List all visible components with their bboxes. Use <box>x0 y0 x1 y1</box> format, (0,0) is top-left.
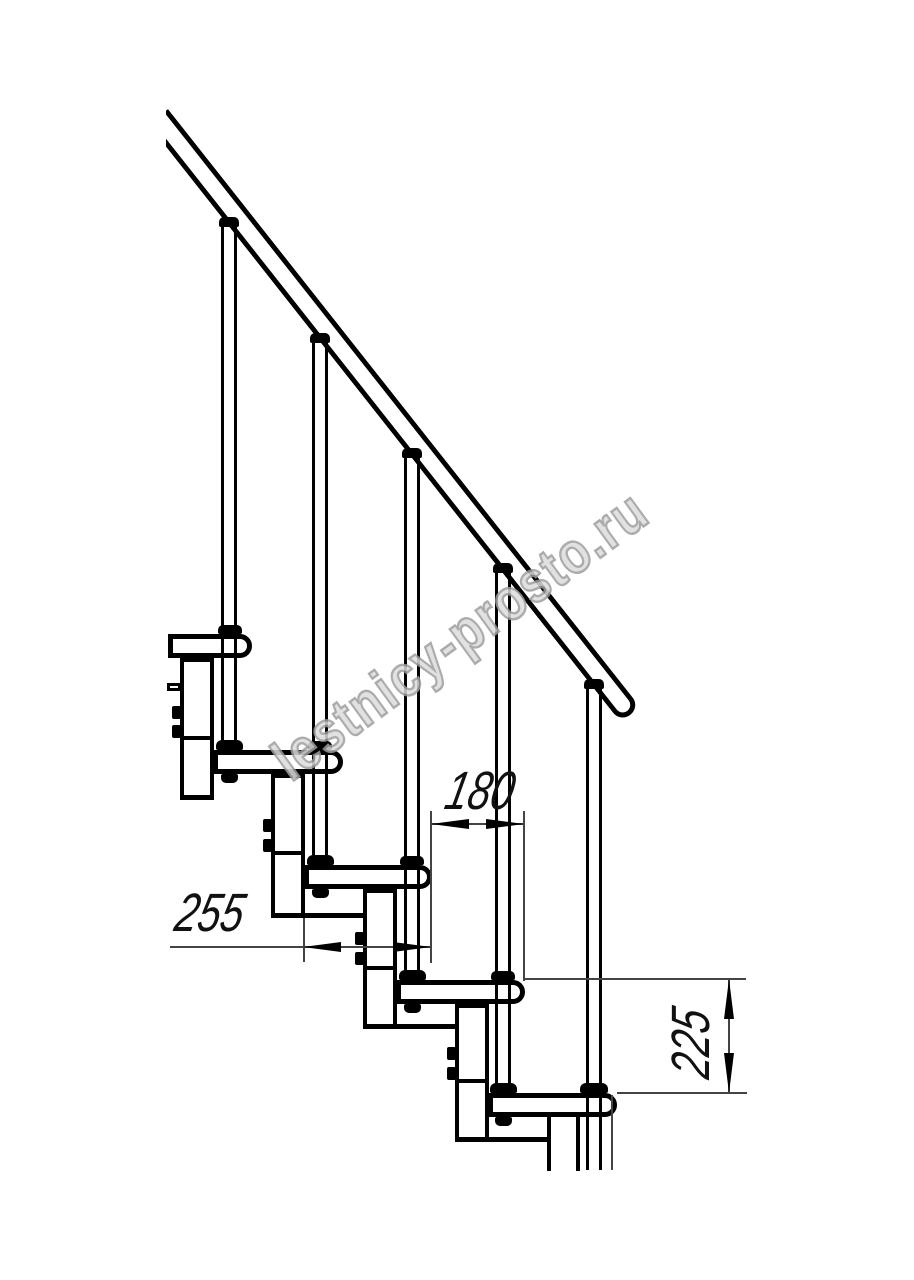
baluster-collar <box>491 971 515 980</box>
dimension-label-180: 180 <box>440 760 530 822</box>
dimension-text: 255 <box>170 882 251 944</box>
extension-line <box>525 978 746 980</box>
adjustment-bolt <box>447 1067 456 1080</box>
baluster-collar <box>400 856 424 865</box>
fastening-nut <box>495 1117 512 1126</box>
baluster-rail-cap <box>310 333 330 343</box>
baluster <box>221 227 237 753</box>
dimension-label-225: 225 <box>661 992 721 1084</box>
module-divider-line <box>180 736 214 740</box>
baluster-collar <box>218 625 242 634</box>
baluster-rail-cap <box>584 679 604 689</box>
arrowhead-left-icon <box>303 942 341 952</box>
adjustment-bolt <box>355 952 364 965</box>
baluster-foot <box>490 1083 517 1093</box>
baluster-foot <box>580 1083 608 1093</box>
stringer-module <box>547 1117 580 1171</box>
stringer-module <box>363 889 397 1029</box>
dimension-text: 180 <box>440 760 521 822</box>
module-divider-line <box>271 851 305 855</box>
baluster <box>404 458 420 982</box>
module-flange <box>455 1137 547 1142</box>
fastening-nut <box>404 1004 421 1013</box>
module-divider-line <box>455 1079 489 1083</box>
arrowhead-up-icon <box>724 979 734 1019</box>
adjustment-bolt <box>172 725 181 738</box>
baluster-foot <box>307 855 334 865</box>
adjustment-bolt <box>263 839 272 852</box>
baluster <box>586 689 602 1170</box>
left-crop-mask <box>0 0 166 280</box>
baluster-rail-cap <box>219 217 239 227</box>
module-flange <box>271 913 364 918</box>
nose-drop-line <box>611 1095 613 1170</box>
module-flange <box>363 1024 455 1029</box>
adjustment-bolt <box>355 932 364 945</box>
dimension-label-255: 255 <box>170 882 260 944</box>
extension-line <box>523 811 525 981</box>
adjustment-bolt <box>172 706 181 719</box>
arrowhead-down-icon <box>724 1053 734 1093</box>
module-divider-line <box>363 966 397 970</box>
module-flange <box>180 795 214 800</box>
baluster-rail-cap <box>402 448 422 458</box>
stringer-module <box>180 658 214 800</box>
arrowhead-right-icon <box>393 942 431 952</box>
baluster <box>312 343 328 867</box>
baluster-foot <box>399 970 426 980</box>
tread <box>168 634 252 658</box>
extension-line <box>303 918 305 962</box>
dimension-text: 225 <box>660 1002 722 1083</box>
stringer-module <box>455 1004 489 1142</box>
extension-line <box>430 811 432 963</box>
adjustment-bolt <box>447 1047 456 1060</box>
adjustment-bolt <box>263 819 272 832</box>
fastening-nut <box>312 889 329 898</box>
bracket-tab <box>167 683 181 691</box>
staircase-technical-drawing: 255 180 225 lestnicy-prosto.ru <box>0 0 914 1280</box>
